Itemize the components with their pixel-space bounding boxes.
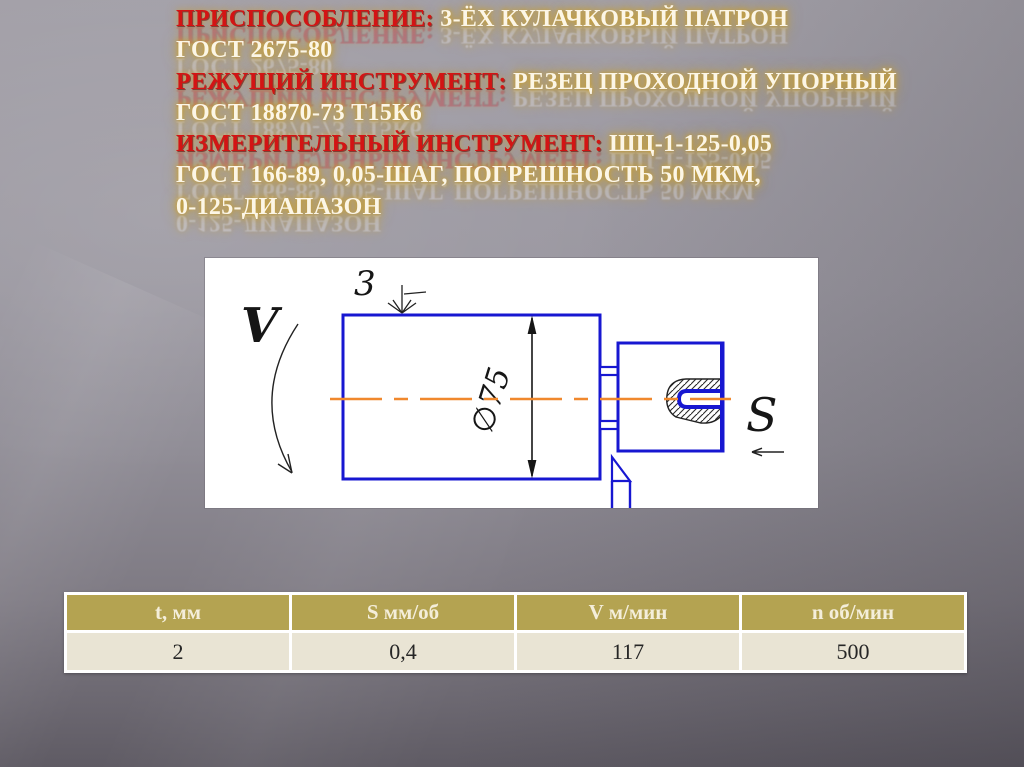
measuring-tool-value: ШЦ-1-125-0,05: [609, 131, 772, 157]
title-line-3: РЕЖУЩИЙ ИНСТРУМЕНТ: РЕЗЕЦ ПРОХОДНОЙ УПОР…: [176, 67, 976, 98]
table-header-row: t, мм S мм/об V м/мин n об/мин: [67, 595, 964, 630]
fixture-gost: ГОСТ 2675-80: [176, 37, 333, 63]
title-line-6: ГОСТ 166-89, 0,05-ШАГ, ПОГРЕШНОСТЬ 50 МК…: [176, 160, 976, 191]
title-line-7: 0-125-ДИАПАЗОН 0-125-ДИАПАЗОН: [176, 192, 976, 223]
title-line-5: ИЗМЕРИТЕЛЬНЫЙ ИНСТРУМЕНТ: ШЦ-1-125-0,05 …: [176, 129, 976, 160]
speed-label: V: [241, 298, 283, 354]
measuring-tool-range: 0-125-ДИАПАЗОН: [176, 194, 382, 220]
measuring-tool-label: ИЗМЕРИТЕЛЬНЫЙ ИНСТРУМЕНТ:: [176, 131, 609, 157]
fixture-value: 3-ЁХ КУЛАЧКОВЫЙ ПАТРОН: [440, 6, 788, 32]
col-header-speed: V м/мин: [517, 595, 739, 630]
depth-value: 2: [67, 633, 289, 670]
title-line-1: ПРИСПОСОБЛЕНИЕ: 3-ЁХ КУЛАЧКОВЫЙ ПАТРОН П…: [176, 4, 976, 35]
machining-diagram: ∅75 V 3 S: [205, 258, 818, 508]
background-streak: [0, 260, 13, 767]
cutting-parameters-table: t, мм S мм/об V м/мин n об/мин 2 0,4 117…: [64, 592, 967, 673]
cutting-tool: [612, 457, 630, 508]
chuck-tab-top: [600, 367, 619, 375]
roughness-mark: [388, 285, 426, 313]
chuck-tab-bottom: [600, 421, 619, 429]
feed-value: 0,4: [292, 633, 514, 670]
col-header-feed: S мм/об: [292, 595, 514, 630]
feed-arrow: [752, 448, 784, 456]
rpm-value: 500: [742, 633, 964, 670]
slide: ПРИСПОСОБЛЕНИЕ: 3-ЁХ КУЛАЧКОВЫЙ ПАТРОН П…: [0, 0, 1024, 767]
measuring-tool-specs: ГОСТ 166-89, 0,05-ШАГ, ПОГРЕШНОСТЬ 50 МК…: [176, 162, 761, 188]
roughness-value: 3: [354, 264, 376, 304]
cutting-tool-label: РЕЖУЩИЙ ИНСТРУМЕНТ:: [176, 69, 513, 95]
title-line-2: ГОСТ 2675-80 ГОСТ 2675-80: [176, 35, 976, 66]
title-block: ПРИСПОСОБЛЕНИЕ: 3-ЁХ КУЛАЧКОВЫЙ ПАТРОН П…: [176, 4, 976, 223]
cutting-tool-value: РЕЗЕЦ ПРОХОДНОЙ УПОРНЫЙ: [513, 69, 897, 95]
workpiece-outline: [343, 315, 600, 479]
table-row: 2 0,4 117 500: [67, 633, 964, 670]
cutting-tool-gost: ГОСТ 18870-73 Т15К6: [176, 100, 422, 126]
col-header-rpm: n об/мин: [742, 595, 964, 630]
col-header-depth: t, мм: [67, 595, 289, 630]
technical-drawing-panel: ∅75 V 3 S: [205, 258, 818, 508]
fixture-label: ПРИСПОСОБЛЕНИЕ:: [176, 6, 440, 32]
speed-value: 117: [517, 633, 739, 670]
title-line-4: ГОСТ 18870-73 Т15К6 ГОСТ 18870-73 Т15К6: [176, 98, 976, 129]
feed-label: S: [746, 388, 778, 442]
